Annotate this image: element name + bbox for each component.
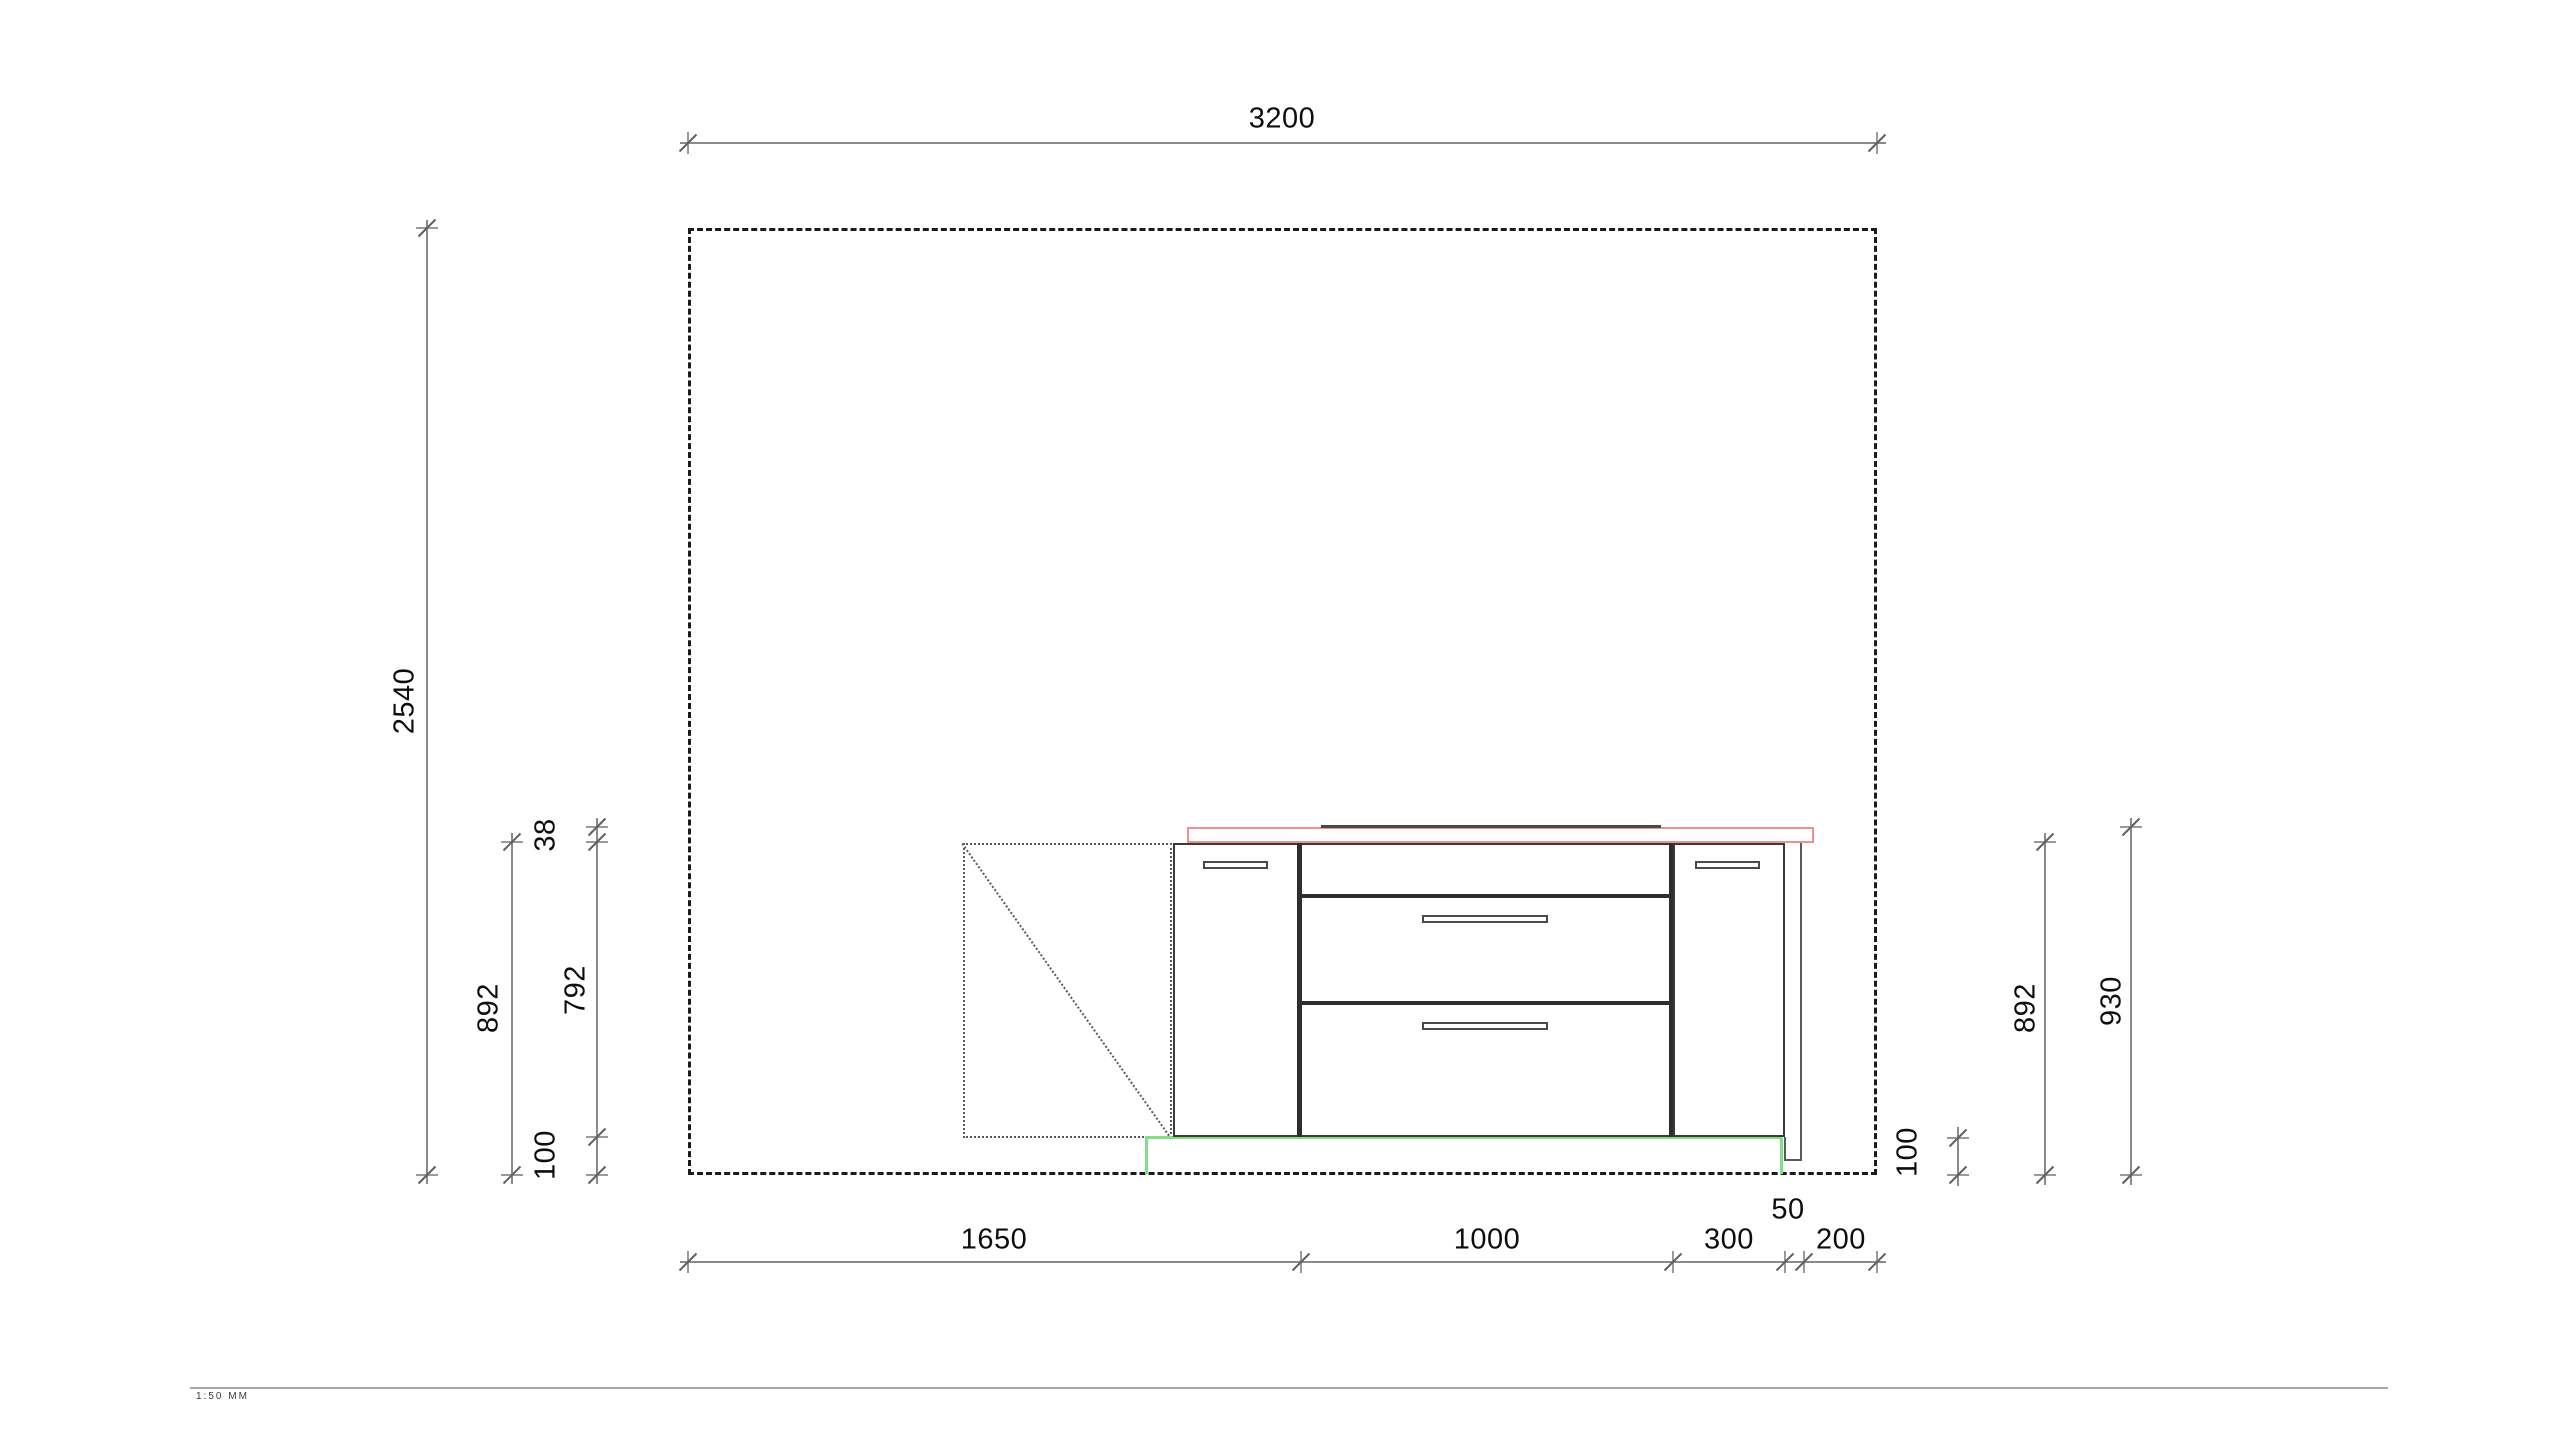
dim-line-bottom-run: [680, 1261, 1886, 1263]
dim-run-300: 300: [1704, 1224, 1754, 1257]
drawer-handle-middle: [1422, 915, 1548, 923]
countertop: [1187, 827, 1814, 843]
dim-plinth-height-right: 100: [1892, 1127, 1925, 1177]
dim-line-worktop-height: [2130, 818, 2132, 1185]
drawer-divider: [1302, 1001, 1671, 1005]
dim-worktop-thickness: 38: [530, 818, 563, 851]
tall-cabinet-door: [1173, 843, 1300, 1137]
dim-line-wall-height: [426, 220, 428, 1184]
dim-line-carcass-right: [2044, 833, 2046, 1185]
dim-carcass-height-right: 892: [2010, 983, 2043, 1033]
dim-carcass-height-left: 892: [473, 983, 506, 1033]
dim-front-height: 792: [560, 965, 593, 1015]
elevation-drawing: 3200 2540 892 38 792 100 100 892 930: [0, 0, 2560, 1440]
dim-worktop-height: 930: [2096, 976, 2129, 1026]
footer-scale-note: 1:50 MM: [196, 1391, 249, 1402]
footer-rule: [190, 1387, 2388, 1389]
dim-wall-height: 2540: [389, 668, 422, 735]
plinth-right-line: [1780, 1136, 1783, 1174]
dim-line-front-left: [596, 818, 598, 1184]
dim-run-1650: 1650: [961, 1224, 1028, 1257]
dim-run-200: 200: [1816, 1224, 1866, 1257]
end-panel-left-edge: [1784, 1137, 1786, 1161]
drawer-stack: [1300, 843, 1673, 1137]
drawer-stack-left-edge: [1297, 843, 1302, 1137]
dim-run-1000: 1000: [1454, 1224, 1521, 1257]
dim-wall-width: 3200: [1249, 103, 1316, 136]
end-panel-right-edge: [1800, 843, 1802, 1161]
drawer-handle-bottom: [1422, 1022, 1548, 1030]
dim-plinth-height-left: 100: [530, 1130, 563, 1180]
plinth-left-line: [1145, 1136, 1148, 1174]
dim-line-carcass-left: [511, 833, 513, 1184]
dim-run-50: 50: [1771, 1194, 1804, 1227]
right-door-handle: [1695, 861, 1760, 869]
dim-line-wall-width: [680, 142, 1886, 144]
drawer-divider: [1302, 894, 1671, 898]
end-panel-bottom-edge: [1784, 1159, 1802, 1161]
right-cabinet-door: [1673, 843, 1785, 1137]
countertop-back-edge: [1321, 825, 1661, 828]
tall-door-handle: [1203, 861, 1268, 869]
